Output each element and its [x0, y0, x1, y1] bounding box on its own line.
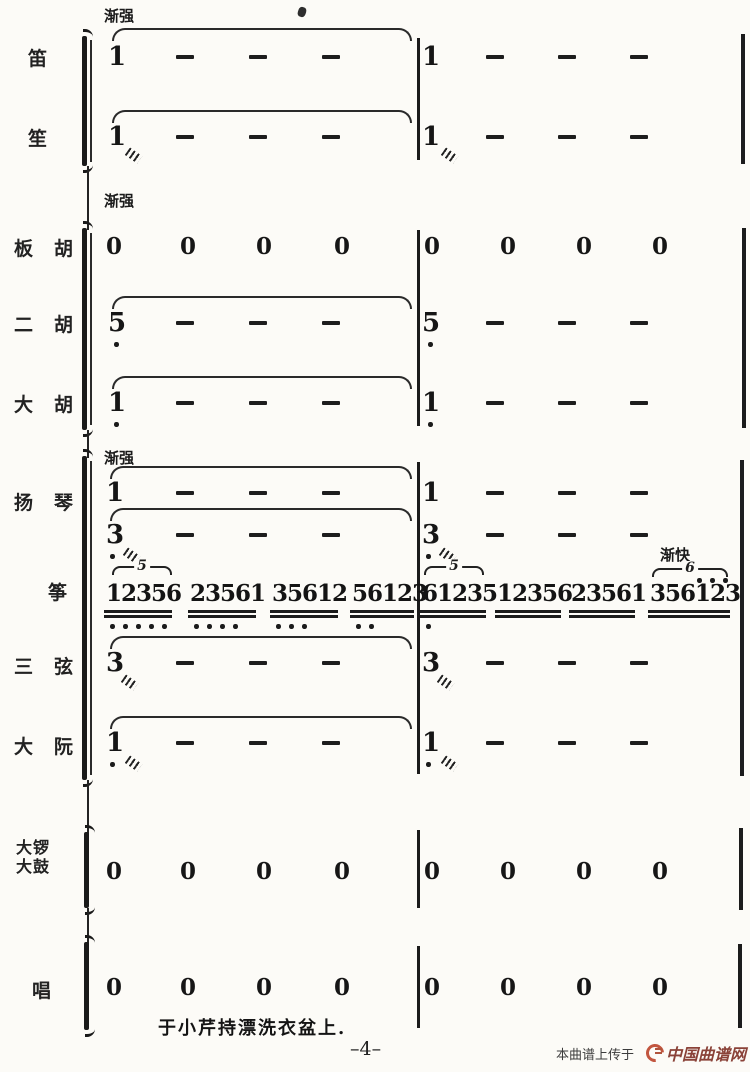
note-yangqin-upper-m1: 1 [106, 480, 124, 506]
sustain-dash [558, 135, 576, 139]
sustain-dash [176, 741, 194, 745]
sustain-dash [630, 55, 648, 59]
low-octave-dot [207, 624, 212, 629]
rest-chang-8: 0 [652, 975, 668, 1001]
sustain-dash [176, 321, 194, 325]
system-bracket-strings-inner [90, 233, 92, 425]
ink-smudge [297, 6, 308, 18]
rest-banhu-5: 0 [424, 234, 440, 260]
zheng-run-8: 356123 [650, 582, 740, 606]
tie-erhu [112, 296, 412, 309]
sustain-dash [486, 533, 504, 537]
note-yangqin-upper-m2: 1 [422, 480, 440, 506]
low-octave-dot [110, 624, 115, 629]
label-erhu: 二 胡 [14, 310, 74, 337]
sustain-dash [322, 401, 340, 405]
label-di: 笛 [28, 44, 48, 71]
zheng-run-1: 12356 [106, 582, 181, 606]
rest-luogu-7: 0 [576, 859, 592, 885]
crescendo-label-3: 渐强 [104, 447, 134, 468]
low-octave-dot [194, 624, 199, 629]
tremolo-mark [437, 675, 454, 691]
low-octave-dot [426, 554, 431, 559]
sustain-dash [558, 741, 576, 745]
note-di-m2: 1 [422, 44, 440, 70]
sustain-dash [630, 533, 648, 537]
sustain-dash [486, 661, 504, 665]
high-octave-dot [723, 578, 728, 583]
note-yangqin-lower-m1: 3 [106, 522, 124, 548]
zheng-run-4: 56123 [352, 582, 427, 606]
low-octave-dot [428, 342, 433, 347]
zheng-run-5: 61235 [422, 582, 497, 606]
sustain-dash [249, 741, 267, 745]
sustain-dash [486, 491, 504, 495]
rest-banhu-6: 0 [500, 234, 516, 260]
sustain-dash [249, 321, 267, 325]
rest-luogu-8: 0 [652, 859, 668, 885]
rest-luogu-6: 0 [500, 859, 516, 885]
sustain-dash [558, 401, 576, 405]
rest-banhu-4: 0 [334, 234, 350, 260]
low-octave-dot [369, 624, 374, 629]
tremolo-mark [121, 675, 138, 691]
sustain-dash [249, 135, 267, 139]
sextuplet-bracket: 6 [652, 568, 728, 577]
rest-banhu-7: 0 [576, 234, 592, 260]
tie-daruan [110, 716, 412, 729]
rest-luogu-3: 0 [256, 859, 272, 885]
rest-chang-6: 0 [500, 975, 516, 1001]
beam-pair [104, 610, 172, 618]
high-octave-dot [710, 578, 715, 583]
low-octave-dot [302, 624, 307, 629]
zheng-run-7: 23561 [571, 582, 646, 606]
rest-chang-2: 0 [180, 975, 196, 1001]
page-number: –4– [350, 1038, 381, 1060]
sustain-dash [176, 661, 194, 665]
tie-sheng [112, 110, 412, 123]
sustain-dash [630, 321, 648, 325]
rest-chang-7: 0 [576, 975, 592, 1001]
sustain-dash [322, 55, 340, 59]
beam-pair [350, 610, 414, 618]
note-sanxian-m1: 3 [106, 650, 124, 676]
barline-mid-vocal [417, 946, 420, 1028]
sustain-dash [322, 741, 340, 745]
sustain-dash [558, 55, 576, 59]
tremolo-mark [125, 148, 142, 164]
crescendo-label-2: 渐强 [104, 190, 134, 211]
note-daruan-m1: 1 [106, 730, 124, 756]
sustain-dash [630, 135, 648, 139]
barline-end-percussion [739, 828, 743, 910]
sustain-dash [322, 135, 340, 139]
sustain-dash [486, 741, 504, 745]
beam-pair [648, 610, 730, 618]
tremolo-mark [441, 148, 458, 164]
zheng-run-2: 23561 [190, 582, 265, 606]
note-erhu-m1: 5 [108, 310, 126, 336]
system-bracket-winds [82, 36, 87, 166]
rest-chang-5: 0 [424, 975, 440, 1001]
zheng-run-6: 12356 [497, 582, 572, 606]
score-page: 渐强 渐强 渐强 渐快 笛 笙 板 胡 二 胡 大 胡 扬 琴 筝 三 弦 大 … [0, 0, 750, 1072]
system-bracket-vocal [84, 942, 89, 1030]
quintuplet-bracket-1: 5 [112, 566, 172, 575]
sustain-dash [630, 491, 648, 495]
label-sanxian: 三 弦 [14, 652, 74, 679]
low-octave-dot [426, 762, 431, 767]
rest-banhu-3: 0 [256, 234, 272, 260]
sustain-dash [176, 533, 194, 537]
note-sheng-m2: 1 [422, 124, 440, 150]
label-yangqin: 扬 琴 [14, 488, 74, 515]
sustain-dash [176, 491, 194, 495]
rest-banhu-2: 0 [180, 234, 196, 260]
system-bracket-percussion [84, 832, 89, 908]
tie-yangqin-lower [110, 508, 412, 521]
system-bracket-plucked-inner [90, 461, 92, 775]
qupu-site-logo-icon [646, 1043, 662, 1059]
stage-direction-caption: 于小芹持漂洗衣盆上. [158, 1014, 346, 1040]
rest-chang-3: 0 [256, 975, 272, 1001]
watermark-site-name: 中国曲谱网 [666, 1041, 746, 1065]
sustain-dash [322, 661, 340, 665]
note-daruan-m2: 1 [422, 730, 440, 756]
note-di-m1: 1 [108, 44, 126, 70]
system-bracket-strings [82, 228, 87, 430]
label-banhu: 板 胡 [14, 234, 74, 261]
beam-pair [188, 610, 256, 618]
tremolo-mark [125, 756, 142, 772]
sustain-dash [558, 661, 576, 665]
high-octave-dot [697, 578, 702, 583]
low-octave-dot [110, 554, 115, 559]
barline-mid-percussion [417, 830, 420, 908]
sustain-dash [486, 135, 504, 139]
rest-chang-1: 0 [106, 975, 122, 1001]
note-dahu-m2: 1 [422, 390, 440, 416]
sustain-dash [176, 55, 194, 59]
sustain-dash [249, 491, 267, 495]
low-octave-dot [233, 624, 238, 629]
sustain-dash [322, 321, 340, 325]
sustain-dash [630, 401, 648, 405]
sustain-dash [486, 55, 504, 59]
sustain-dash [558, 321, 576, 325]
rest-luogu-1: 0 [106, 859, 122, 885]
system-bracket-plucked [82, 456, 87, 780]
low-octave-dot [123, 624, 128, 629]
sustain-dash [486, 401, 504, 405]
sustain-dash [249, 533, 267, 537]
low-octave-dot [114, 422, 119, 427]
note-sanxian-m2: 3 [422, 650, 440, 676]
sustain-dash [176, 135, 194, 139]
sustain-dash [322, 533, 340, 537]
rest-luogu-5: 0 [424, 859, 440, 885]
low-octave-dot [162, 624, 167, 629]
barline-end-winds [741, 34, 745, 164]
sustain-dash [322, 491, 340, 495]
note-yangqin-lower-m2: 3 [422, 522, 440, 548]
sustain-dash [249, 55, 267, 59]
quintuplet-bracket-2: 5 [424, 566, 484, 575]
barline-mid-plucked [417, 462, 420, 774]
barline-end-plucked [740, 460, 744, 776]
low-octave-dot [428, 422, 433, 427]
label-sheng: 笙 [28, 124, 48, 151]
low-octave-dot [136, 624, 141, 629]
tie-yangqin-upper [110, 466, 412, 479]
low-octave-dot [220, 624, 225, 629]
sustain-dash [249, 401, 267, 405]
system-bracket-winds-inner [90, 40, 92, 162]
sustain-dash [486, 321, 504, 325]
label-dagu: 大鼓 [16, 853, 50, 877]
watermark-prefix: 本曲谱上传于 [556, 1044, 634, 1063]
rest-banhu-8: 0 [652, 234, 668, 260]
note-erhu-m2: 5 [422, 310, 440, 336]
sustain-dash [249, 661, 267, 665]
label-dahu: 大 胡 [14, 390, 74, 417]
sustain-dash [630, 661, 648, 665]
beam-pair [420, 610, 486, 618]
note-dahu-m1: 1 [108, 390, 126, 416]
beam-pair [569, 610, 635, 618]
barline-end-strings [742, 228, 746, 428]
label-daruan: 大 阮 [14, 732, 74, 759]
barline-mid-strings [417, 230, 420, 426]
tremolo-mark [441, 756, 458, 772]
tie-di [112, 28, 412, 41]
rest-luogu-2: 0 [180, 859, 196, 885]
label-chang: 唱 [32, 976, 52, 1003]
barline-end-vocal [738, 944, 742, 1028]
tie-sanxian [110, 636, 412, 649]
label-zheng: 筝 [48, 578, 68, 605]
low-octave-dot [149, 624, 154, 629]
tie-dahu [112, 376, 412, 389]
low-octave-dot [276, 624, 281, 629]
sustain-dash [558, 491, 576, 495]
crescendo-label-1: 渐强 [104, 5, 134, 26]
rest-banhu-1: 0 [106, 234, 122, 260]
rest-luogu-4: 0 [334, 859, 350, 885]
zheng-run-3: 35612 [272, 582, 347, 606]
sustain-dash [630, 741, 648, 745]
low-octave-dot [114, 342, 119, 347]
low-octave-dot [426, 624, 431, 629]
barline-mid-winds [417, 38, 420, 160]
rest-chang-4: 0 [334, 975, 350, 1001]
sustain-dash [558, 533, 576, 537]
low-octave-dot [110, 762, 115, 767]
note-sheng-m1: 1 [108, 124, 126, 150]
sustain-dash [176, 401, 194, 405]
low-octave-dot [356, 624, 361, 629]
beam-pair [495, 610, 561, 618]
beam-pair [270, 610, 338, 618]
low-octave-dot [289, 624, 294, 629]
